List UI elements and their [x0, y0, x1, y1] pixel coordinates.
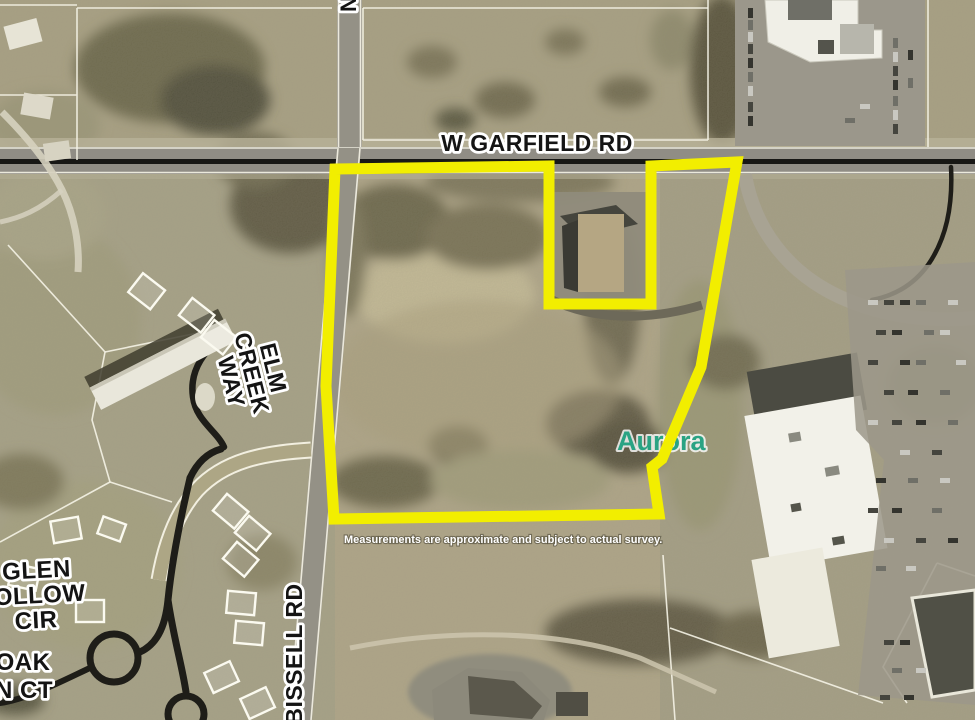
car [893, 96, 898, 106]
car [868, 420, 878, 425]
car [948, 538, 958, 543]
car [876, 478, 886, 483]
car [932, 450, 942, 455]
car [884, 538, 894, 543]
car [893, 38, 898, 48]
car [908, 78, 913, 88]
car [868, 508, 878, 513]
car [748, 20, 753, 30]
svg-text:OAK: OAK [0, 649, 51, 676]
car [876, 330, 886, 335]
car [916, 300, 926, 305]
car [892, 420, 902, 425]
car [900, 450, 910, 455]
car [940, 478, 950, 483]
car [932, 508, 942, 513]
road-label-oak-ct: OAK N CT [0, 649, 53, 704]
car [892, 508, 902, 513]
car [884, 300, 894, 305]
car [908, 50, 913, 60]
car [916, 360, 926, 365]
car [748, 116, 753, 126]
road-label-north-partial: N [336, 0, 361, 12]
svg-text:N CT: N CT [0, 677, 53, 704]
car [845, 118, 855, 123]
car [748, 58, 753, 68]
car [893, 124, 898, 134]
car [748, 44, 753, 54]
car [893, 66, 898, 76]
car [748, 32, 753, 42]
car [893, 110, 898, 120]
car [748, 86, 753, 96]
car [900, 300, 910, 305]
car [860, 104, 870, 109]
car [940, 330, 950, 335]
car [868, 300, 878, 305]
road-label-bissell: BISSELL RD [281, 583, 307, 720]
car [868, 360, 878, 365]
car [948, 420, 958, 425]
car [900, 360, 910, 365]
car [884, 640, 894, 645]
car [748, 72, 753, 82]
car [893, 52, 898, 62]
car [884, 390, 894, 395]
car [940, 390, 950, 395]
car [876, 566, 886, 571]
car [748, 8, 753, 18]
car [908, 478, 918, 483]
car [748, 102, 753, 112]
car [880, 695, 890, 700]
car [892, 330, 902, 335]
car [948, 300, 958, 305]
car [893, 80, 898, 90]
north-road [337, 0, 362, 147]
car [908, 390, 918, 395]
car [916, 420, 926, 425]
car [916, 668, 926, 673]
car [906, 566, 916, 571]
car [892, 668, 902, 673]
car [956, 360, 966, 365]
disclaimer-text: Measurements are approximate and subject… [344, 534, 662, 546]
aerial-map: Aurora W GARFIELD RD N ELM CREEK WAY GLE… [0, 0, 975, 720]
car [904, 695, 914, 700]
car [924, 330, 934, 335]
car [916, 538, 926, 543]
car [900, 640, 910, 645]
svg-text:CIR: CIR [14, 606, 58, 635]
road-label-garfield: W GARFIELD RD [441, 130, 633, 156]
